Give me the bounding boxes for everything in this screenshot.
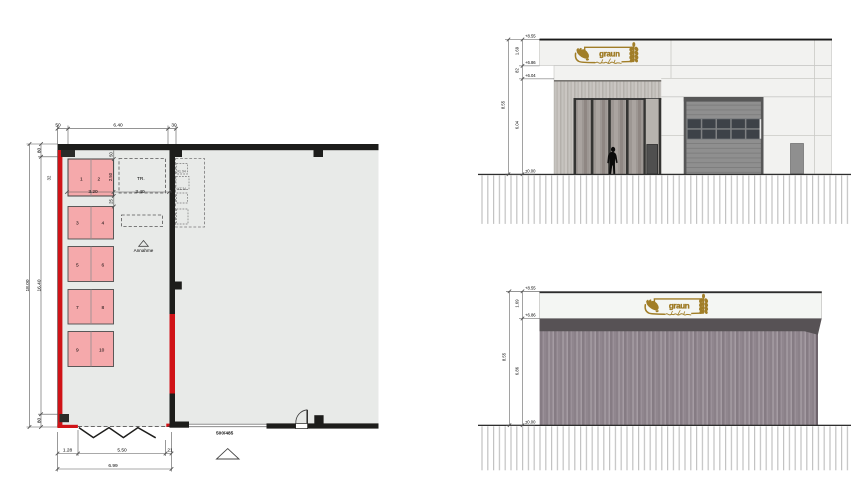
svg-text:1.69: 1.69 xyxy=(515,299,520,308)
svg-text:500/485: 500/485 xyxy=(216,431,234,437)
svg-text:3: 3 xyxy=(76,221,79,227)
svg-text:3.20: 3.20 xyxy=(88,189,98,195)
svg-text:9: 9 xyxy=(76,348,79,354)
svg-text:6.99: 6.99 xyxy=(108,463,118,469)
svg-text:7: 7 xyxy=(76,305,79,311)
svg-text:6.86: 6.86 xyxy=(515,366,520,375)
svg-text:+8.55: +8.55 xyxy=(525,285,536,290)
svg-text:82: 82 xyxy=(515,68,520,73)
svg-text:50: 50 xyxy=(109,152,114,157)
svg-text:10: 10 xyxy=(99,348,105,354)
svg-text:1.28: 1.28 xyxy=(63,447,73,453)
svg-text:3.40: 3.40 xyxy=(135,189,145,195)
svg-text:50: 50 xyxy=(55,123,61,129)
svg-text:4: 4 xyxy=(102,221,105,227)
svg-text:30: 30 xyxy=(171,123,177,129)
svg-text:5.50: 5.50 xyxy=(117,447,127,453)
svg-text:6.40: 6.40 xyxy=(113,123,123,129)
svg-text:2: 2 xyxy=(98,177,101,183)
svg-text:TR.: TR. xyxy=(137,176,145,182)
svg-text:+6.04: +6.04 xyxy=(525,73,536,78)
svg-text:6: 6 xyxy=(102,263,105,269)
svg-text:+6.86: +6.86 xyxy=(525,313,536,318)
svg-text:80: 80 xyxy=(37,148,43,154)
svg-text:8.55: 8.55 xyxy=(502,352,507,361)
svg-text:21: 21 xyxy=(167,447,173,453)
svg-text:2.50: 2.50 xyxy=(108,172,113,181)
svg-text:+6.86: +6.86 xyxy=(525,60,536,65)
svg-text:16.40: 16.40 xyxy=(37,279,43,291)
svg-text:8.55: 8.55 xyxy=(501,100,506,109)
svg-text:80: 80 xyxy=(37,418,43,424)
svg-text:KL 94: KL 94 xyxy=(178,170,186,174)
svg-text:25: 25 xyxy=(109,199,114,204)
svg-text:1.69: 1.69 xyxy=(515,46,520,55)
svg-text:32: 32 xyxy=(47,175,52,180)
svg-text:5: 5 xyxy=(76,263,79,269)
svg-text:+8.55: +8.55 xyxy=(525,34,536,39)
svg-text:6.04: 6.04 xyxy=(515,120,520,129)
svg-text:KZ 34: KZ 34 xyxy=(178,187,187,191)
svg-text:±0.00: ±0.00 xyxy=(525,419,536,424)
svg-text:1: 1 xyxy=(80,177,83,183)
svg-text:18.00: 18.00 xyxy=(25,279,31,291)
svg-text:8: 8 xyxy=(102,305,105,311)
svg-text:±0.00: ±0.00 xyxy=(525,168,536,173)
svg-text:Annahme: Annahme xyxy=(134,248,154,253)
